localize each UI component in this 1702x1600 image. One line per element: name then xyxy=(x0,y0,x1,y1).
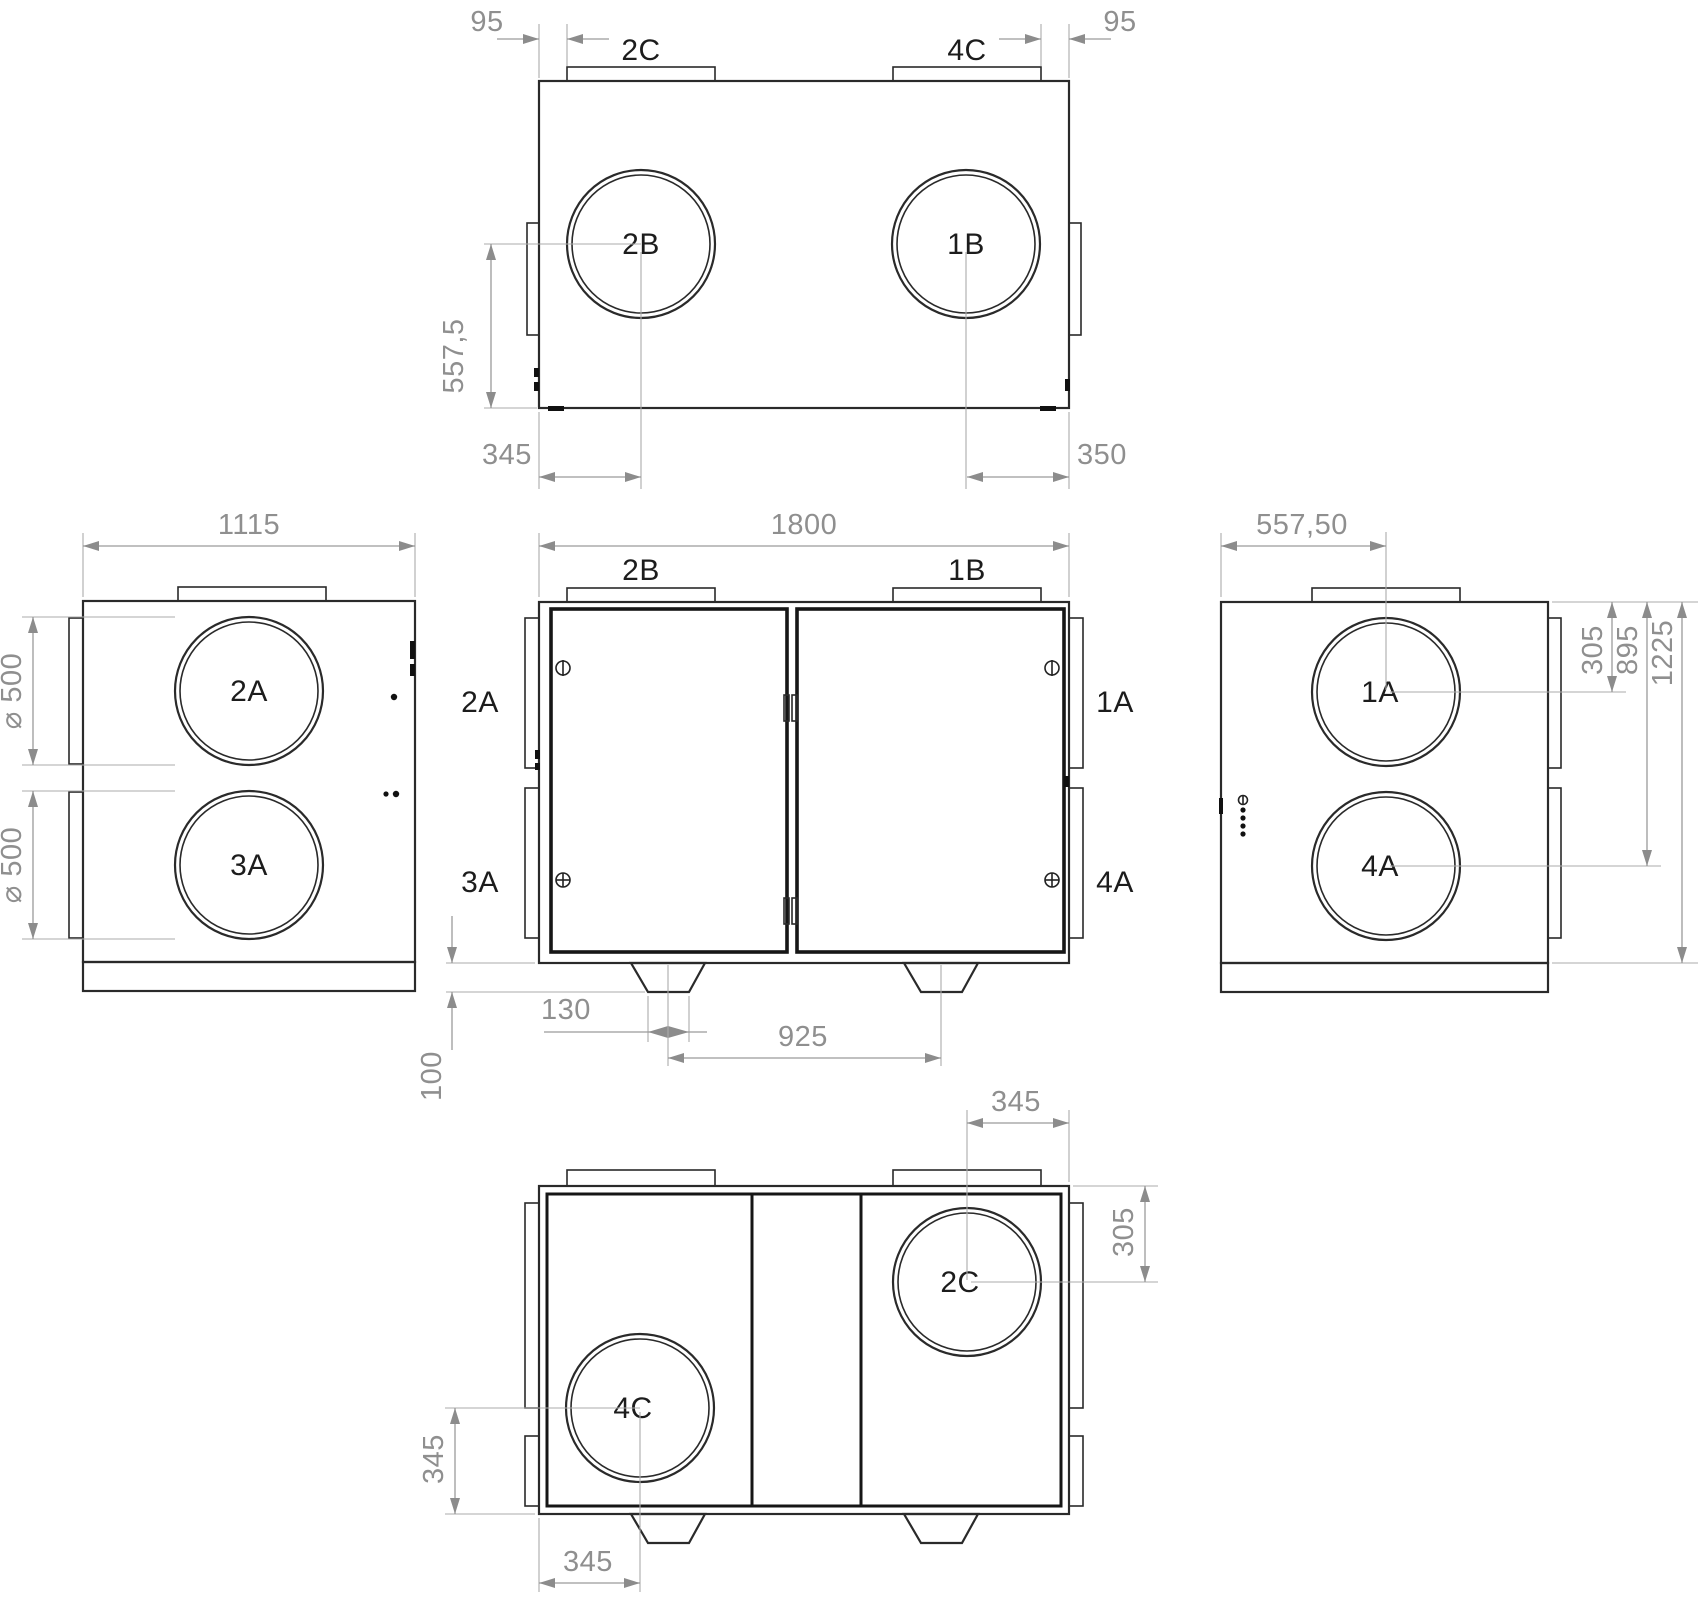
label-3a: 3A xyxy=(230,849,268,882)
dim-345-top: 345 xyxy=(967,1086,1069,1280)
side-tab xyxy=(1069,1203,1083,1408)
mounting-marks xyxy=(534,368,1070,411)
dim-dia500-top: ⌀ 500 xyxy=(0,617,175,765)
svg-text:1225: 1225 xyxy=(1647,620,1679,687)
svg-text:95: 95 xyxy=(1103,6,1136,38)
label-2a: 2A xyxy=(461,686,499,719)
label-2a: 2A xyxy=(230,675,268,708)
dim-345-top-view: 345 xyxy=(482,252,641,489)
flange-2b xyxy=(567,588,715,602)
right-door xyxy=(797,609,1064,952)
svg-text:345: 345 xyxy=(991,1086,1041,1118)
dim-925: 925 xyxy=(668,965,941,1066)
label-3a: 3A xyxy=(461,866,499,899)
foot-right xyxy=(904,1514,978,1543)
panel-fasteners xyxy=(383,641,415,797)
foot-left xyxy=(631,1514,705,1543)
svg-text:1115: 1115 xyxy=(218,509,280,541)
dim-345-bottom: 345 xyxy=(539,1412,640,1592)
view-top: 2C 4C 2B 1B 95 95 557,5 3 xyxy=(438,6,1137,489)
side-tab xyxy=(69,618,83,764)
svg-text:95: 95 xyxy=(470,6,503,38)
view-bottom: 2C 4C 345 305 345 345 xyxy=(418,1086,1158,1592)
base-rail xyxy=(83,962,415,991)
svg-text:305: 305 xyxy=(1108,1207,1140,1257)
svg-text:350: 350 xyxy=(1077,439,1127,471)
svg-text:345: 345 xyxy=(418,1434,450,1484)
svg-text:100: 100 xyxy=(416,1051,448,1101)
side-tab xyxy=(525,1203,539,1408)
base-rail xyxy=(1221,963,1548,992)
label-1b: 1B xyxy=(948,554,986,587)
svg-text:557,5: 557,5 xyxy=(438,318,470,393)
svg-text:925: 925 xyxy=(778,1021,828,1053)
svg-text:⌀ 500: ⌀ 500 xyxy=(0,653,28,729)
dim-557-50: 557,50 xyxy=(1221,509,1386,690)
svg-text:345: 345 xyxy=(563,1546,613,1578)
dim-dia500-bottom: ⌀ 500 xyxy=(0,791,175,939)
technical-drawing-page: 2C 4C 2B 1B 95 95 557,5 3 xyxy=(0,0,1702,1600)
view-left: 2A 3A 1115 ⌀ 500 ⌀ 500 xyxy=(0,509,415,991)
dim-100: 100 xyxy=(416,916,645,1101)
flange-1b xyxy=(893,588,1041,602)
door-screws xyxy=(556,660,1059,887)
svg-text:130: 130 xyxy=(541,994,591,1026)
side-tab xyxy=(525,1436,539,1506)
svg-text:305: 305 xyxy=(1577,625,1609,675)
dim-305-right: 305 xyxy=(971,1186,1158,1282)
label-2c: 2C xyxy=(621,34,660,67)
dim-350-top-view: 350 xyxy=(966,252,1127,489)
flange xyxy=(567,1170,715,1186)
hvac-unit-drawing: 2C 4C 2B 1B 95 95 557,5 3 xyxy=(0,0,1702,1600)
side-tab-3a xyxy=(525,788,539,938)
mounting-marks xyxy=(535,750,1069,787)
bottom-panel xyxy=(547,1194,1061,1506)
side-tab xyxy=(527,223,539,335)
svg-text:345: 345 xyxy=(482,439,532,471)
flange-4c xyxy=(893,67,1041,81)
svg-text:1800: 1800 xyxy=(771,509,838,541)
side-tab xyxy=(1069,1436,1083,1506)
dim-1115: 1115 xyxy=(83,509,415,597)
dim-345-left: 345 xyxy=(418,1408,640,1514)
svg-text:895: 895 xyxy=(1612,625,1644,675)
side-tab-1a xyxy=(1069,618,1083,768)
dim-130: 130 xyxy=(541,994,707,1042)
top-flange xyxy=(178,587,326,601)
svg-text:557,50: 557,50 xyxy=(1256,509,1348,541)
side-tab-2a xyxy=(525,618,539,768)
view-front: 2B 1B 2A 3A 1A 4A 1800 100 130 xyxy=(416,509,1134,1101)
side-tab xyxy=(1548,788,1561,938)
flange-2c xyxy=(567,67,715,81)
label-1a: 1A xyxy=(1096,686,1134,719)
indicator-dots xyxy=(1219,796,1248,837)
side-tab xyxy=(69,792,83,938)
label-4a: 4A xyxy=(1096,866,1134,899)
label-2b: 2B xyxy=(622,554,660,587)
label-4c: 4C xyxy=(947,34,986,67)
dim-1800: 1800 xyxy=(539,509,1069,597)
view-right: 1A 4A 557,50 305 895 1225 xyxy=(1219,509,1698,992)
side-tab xyxy=(1548,618,1561,768)
side-tab-4a xyxy=(1069,788,1083,938)
left-door xyxy=(551,609,787,952)
svg-text:⌀ 500: ⌀ 500 xyxy=(0,827,28,903)
side-tab xyxy=(1069,223,1081,335)
dim-305-895-1225: 305 895 1225 xyxy=(1390,602,1698,963)
